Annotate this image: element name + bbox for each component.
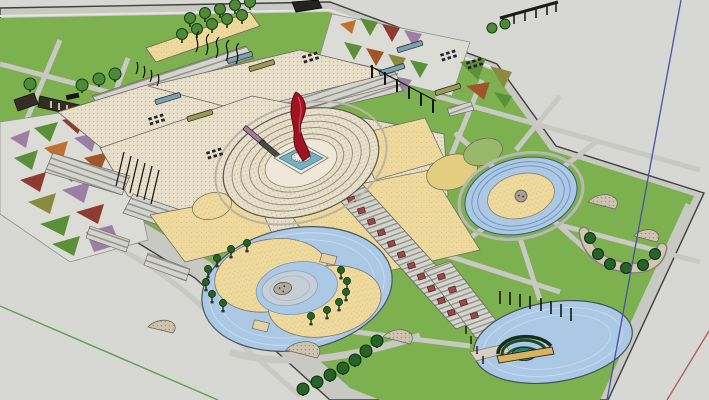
patio[interactable] xyxy=(148,320,175,333)
ruin-opening xyxy=(50,101,52,108)
tree[interactable] xyxy=(638,260,649,271)
tree[interactable] xyxy=(650,249,661,260)
tree[interactable] xyxy=(605,259,616,270)
tree[interactable] xyxy=(621,263,632,274)
park-model[interactable] xyxy=(0,0,704,400)
red-axis xyxy=(667,331,709,400)
ruin-opening xyxy=(58,103,60,110)
tree[interactable] xyxy=(593,249,604,260)
green-axis xyxy=(0,306,218,400)
pavilion-beam[interactable] xyxy=(500,2,558,18)
tree[interactable] xyxy=(500,19,510,29)
sketchup-viewport[interactable] xyxy=(0,0,709,400)
model-canvas[interactable] xyxy=(0,0,709,400)
tree[interactable] xyxy=(487,23,497,33)
tree[interactable] xyxy=(585,233,596,244)
